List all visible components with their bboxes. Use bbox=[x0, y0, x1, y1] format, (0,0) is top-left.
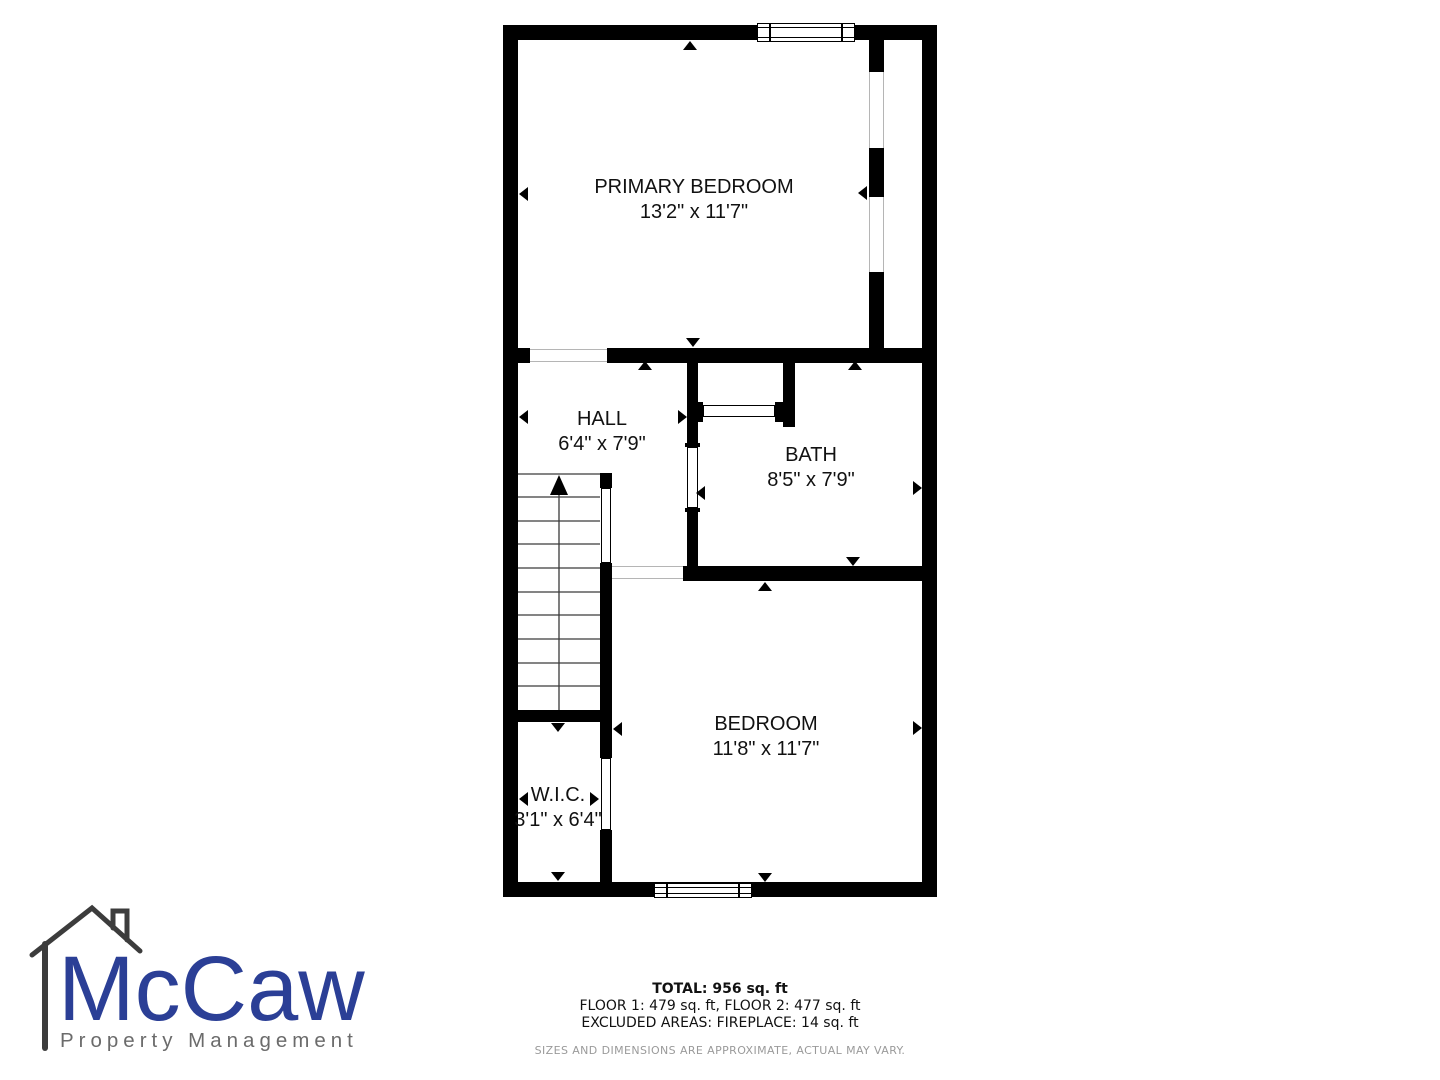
stairs bbox=[518, 473, 600, 710]
disclaimer: SIZES AND DIMENSIONS ARE APPROXIMATE, AC… bbox=[320, 1044, 1120, 1057]
direction-marker bbox=[683, 41, 697, 50]
wall bbox=[869, 272, 884, 348]
door-opening bbox=[530, 349, 607, 362]
direction-marker bbox=[551, 872, 565, 881]
door-opening bbox=[612, 566, 683, 579]
wall bbox=[607, 348, 937, 363]
wall bbox=[600, 722, 612, 758]
room-dimensions: 13'2" x 11'7" bbox=[544, 200, 844, 225]
direction-marker bbox=[519, 187, 528, 201]
direction-marker bbox=[858, 186, 867, 200]
direction-marker bbox=[758, 873, 772, 882]
wall bbox=[600, 830, 612, 882]
stairs-up-arrow bbox=[550, 475, 568, 495]
wall bbox=[503, 25, 518, 897]
room-label-wic: W.I.C. 3'1" x 6'4" bbox=[458, 783, 658, 833]
window-cap bbox=[841, 24, 843, 41]
wall bbox=[600, 473, 612, 488]
room-name: W.I.C. bbox=[458, 783, 658, 808]
direction-marker bbox=[696, 486, 705, 500]
window-cap bbox=[738, 884, 740, 897]
area-summary: TOTAL: 956 sq. ft FLOOR 1: 479 sq. ft, F… bbox=[320, 981, 1120, 1057]
wall bbox=[503, 25, 937, 40]
room-name: HALL bbox=[502, 407, 702, 432]
closet-door-leaf bbox=[703, 405, 775, 417]
wall bbox=[683, 566, 937, 581]
floorplan-page: PRIMARY BEDROOM 13'2" x 11'7" HALL 6'4" … bbox=[0, 0, 1440, 1080]
stair-railing bbox=[601, 488, 611, 563]
window bbox=[757, 23, 855, 42]
wall bbox=[687, 512, 698, 570]
window-cap bbox=[769, 24, 771, 41]
room-name: BATH bbox=[711, 443, 911, 468]
room-name: BEDROOM bbox=[616, 712, 916, 737]
direction-marker bbox=[913, 481, 922, 495]
room-label-hall: HALL 6'4" x 7'9" bbox=[502, 407, 702, 457]
excluded-areas: EXCLUDED AREAS: FIREPLACE: 14 sq. ft bbox=[320, 1015, 1120, 1032]
door-jamb bbox=[685, 508, 700, 512]
direction-marker bbox=[551, 723, 565, 732]
closet-opening bbox=[869, 197, 884, 272]
logo-tagline-text: Property Management bbox=[60, 1029, 358, 1052]
direction-marker bbox=[848, 361, 862, 370]
wall bbox=[600, 563, 612, 710]
direction-marker bbox=[638, 361, 652, 370]
wall bbox=[869, 40, 884, 72]
window-cap bbox=[666, 884, 668, 897]
wall bbox=[783, 363, 795, 427]
window bbox=[654, 883, 752, 898]
wall bbox=[869, 148, 884, 197]
closet-opening bbox=[869, 72, 884, 148]
direction-marker bbox=[686, 338, 700, 347]
floor-areas: FLOOR 1: 479 sq. ft, FLOOR 2: 477 sq. ft bbox=[320, 998, 1120, 1015]
room-dimensions: 3'1" x 6'4" bbox=[458, 808, 658, 833]
room-dimensions: 11'8" x 11'7" bbox=[616, 737, 916, 762]
direction-marker bbox=[758, 582, 772, 591]
room-name: PRIMARY BEDROOM bbox=[544, 175, 844, 200]
room-dimensions: 6'4" x 7'9" bbox=[502, 432, 702, 457]
wall bbox=[503, 348, 530, 363]
room-label-primary-bedroom: PRIMARY BEDROOM 13'2" x 11'7" bbox=[544, 175, 844, 225]
window-pane bbox=[655, 887, 751, 894]
room-label-bath: BATH 8'5" x 7'9" bbox=[711, 443, 911, 493]
wall bbox=[922, 25, 937, 897]
total-area: TOTAL: 956 sq. ft bbox=[320, 981, 1120, 998]
direction-marker bbox=[846, 557, 860, 566]
window-pane bbox=[758, 27, 854, 38]
room-label-bedroom: BEDROOM 11'8" x 11'7" bbox=[616, 712, 916, 762]
wall bbox=[503, 710, 612, 722]
room-dimensions: 8'5" x 7'9" bbox=[711, 468, 911, 493]
door-jamb bbox=[775, 402, 783, 422]
